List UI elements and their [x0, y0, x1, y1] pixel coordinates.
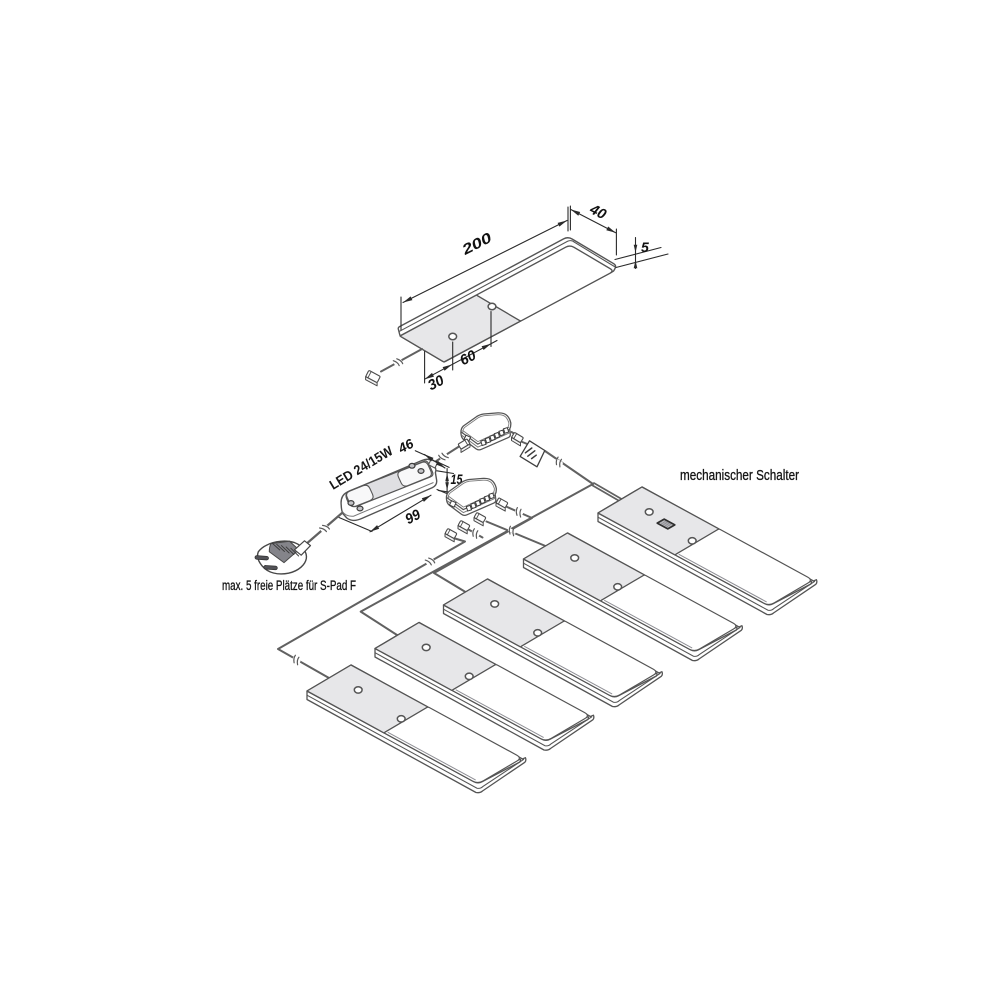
svg-text:5: 5 [641, 239, 649, 255]
svg-text:max. 5 freie Plätze für S-Pad: max. 5 freie Plätze für S-Pad F [222, 578, 356, 593]
svg-text:mechanischer Schalter: mechanischer Schalter [680, 468, 799, 484]
